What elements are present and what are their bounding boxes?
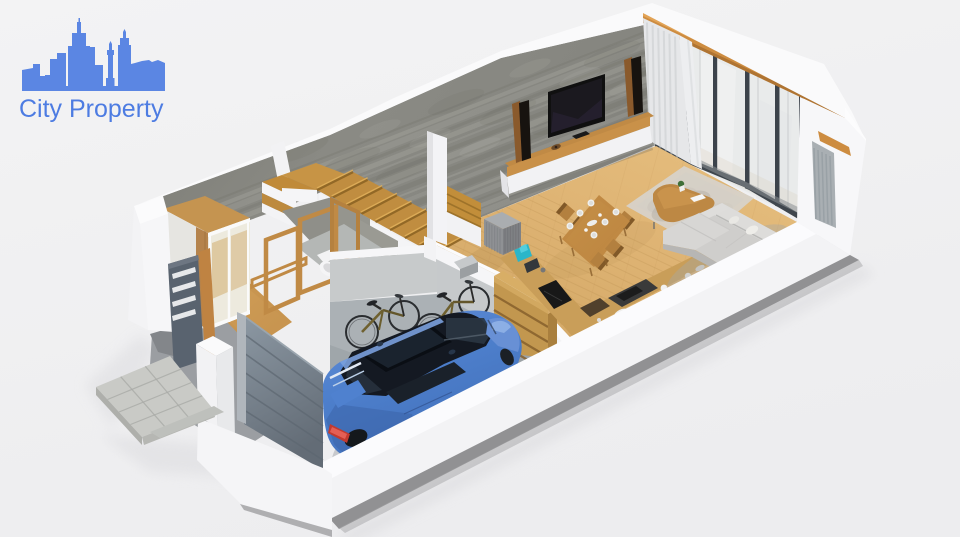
svg-text:City Property: City Property (19, 95, 164, 123)
